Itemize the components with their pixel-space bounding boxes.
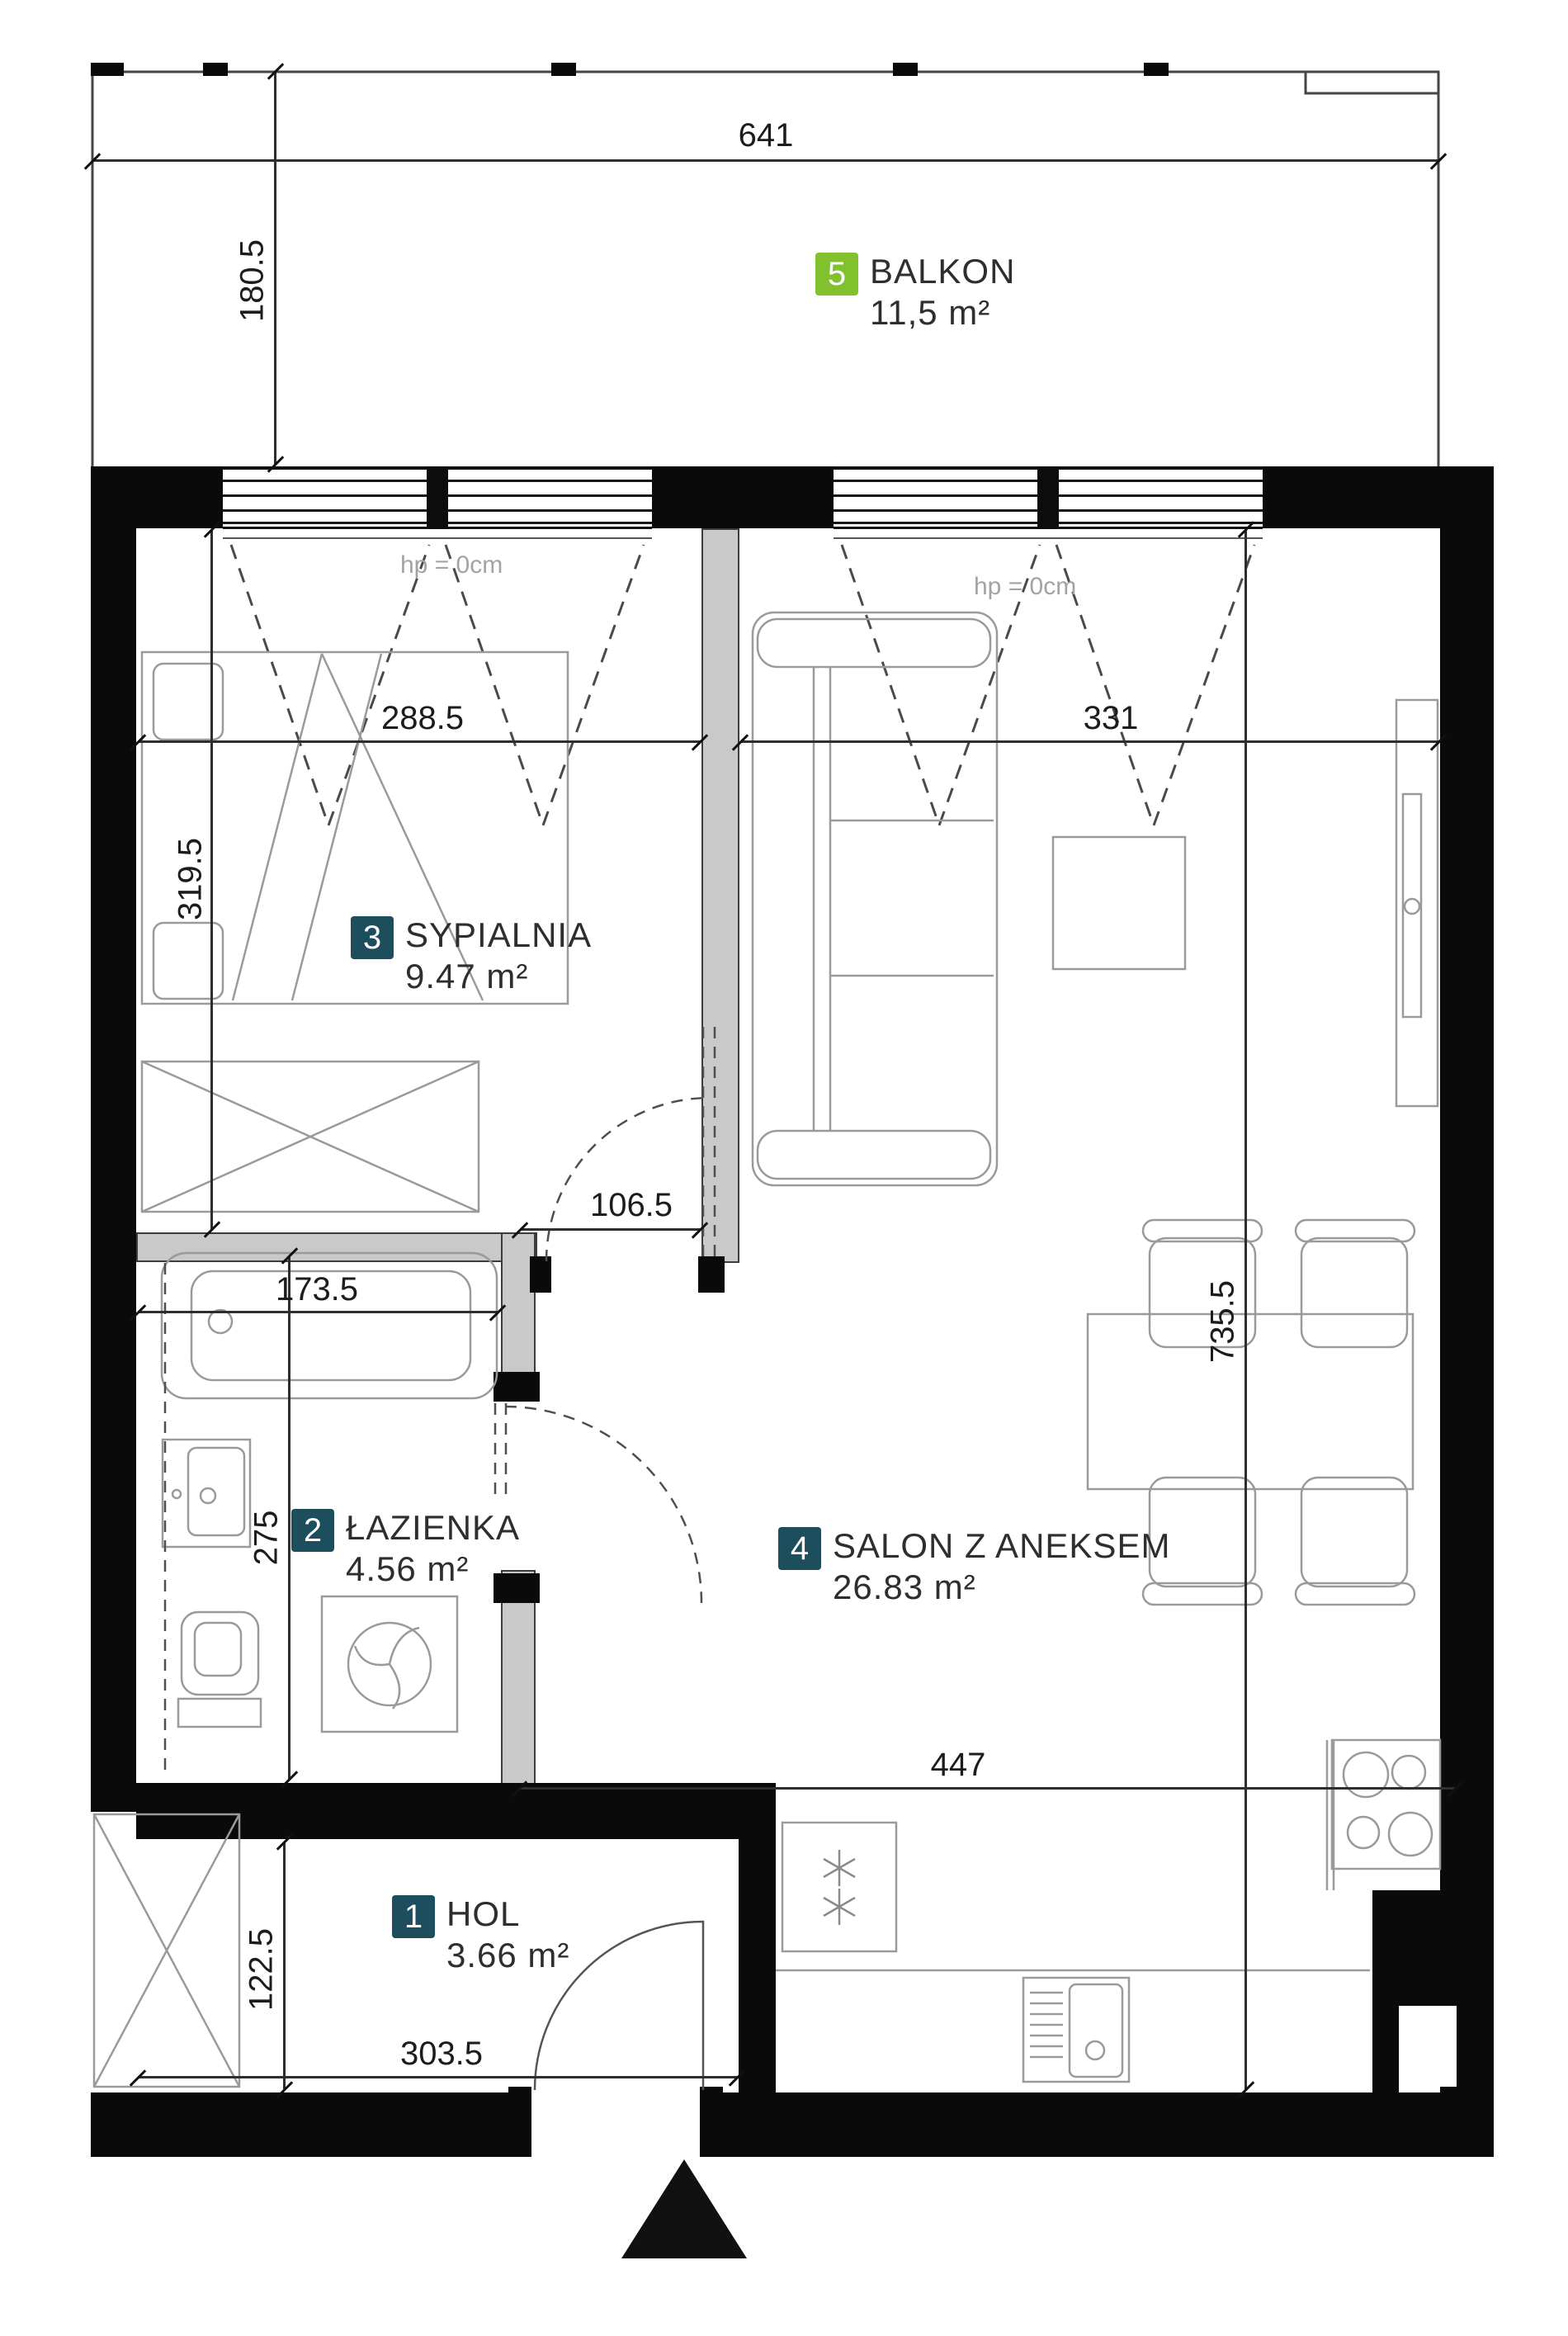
dim-line-hall-depth: [283, 1842, 286, 2090]
kitchen-sink: [1023, 1978, 1129, 2082]
wall-bathroom-top: [136, 1232, 537, 1262]
room-name: SYPIALNIA: [405, 916, 592, 954]
coffee-table: [1053, 837, 1185, 969]
entrance-jamb-left: [508, 2087, 531, 2156]
dim-line-bedroom-depth: [210, 530, 213, 1230]
kitchen-counter: [776, 1740, 1370, 1970]
dim-line-bathroom-depth: [288, 1256, 290, 1780]
dim-bedroom-depth: 319.5: [172, 838, 210, 920]
window-swing-dashes: [231, 545, 1254, 825]
dim-line-balcony-depth: [274, 72, 276, 465]
dim-bedroom-width: 288.5: [381, 700, 464, 737]
hob: [1332, 1740, 1440, 1869]
dim-salon-depth: 735.5: [1205, 1280, 1242, 1363]
toilet: [178, 1612, 261, 1727]
room-number-badge: 3: [351, 916, 394, 959]
window-sill-note: hp = 0cm: [400, 551, 503, 579]
dim-bathroom-width: 173.5: [276, 1271, 358, 1308]
washing-machine: [322, 1596, 457, 1732]
wardrobe-bedroom: [142, 1062, 479, 1212]
bathroom-door-jamb-top: [494, 1372, 540, 1402]
dim-salon-width: 331: [1084, 700, 1139, 737]
dim-line-hall-width: [138, 2076, 737, 2078]
dim-hall-depth: 122.5: [243, 1928, 281, 2011]
room-area: 4.56 m²: [346, 1550, 520, 1588]
bathroom-door-leaf: [495, 1403, 506, 1496]
entrance-jamb-right: [700, 2087, 723, 2156]
room-name: HOL: [446, 1895, 569, 1933]
floor-plan: hp = 0cm hp = 0cm 641 180.5 288.5 331 31…: [0, 0, 1568, 2336]
wall-left: [91, 466, 136, 1812]
tv-unit: [1396, 700, 1438, 1106]
dim-line-bathroom-width: [138, 1311, 498, 1313]
dim-line-salon-depth: [1244, 530, 1247, 2090]
room-label-sypialnia: 3 SYPIALNIA 9.47 m²: [351, 916, 592, 995]
room-number-badge: 4: [778, 1527, 821, 1570]
room-area: 11,5 m²: [870, 294, 1015, 332]
room-name: ŁAZIENKA: [346, 1509, 520, 1547]
dining-chairs: [1143, 1220, 1415, 1605]
washbasin: [163, 1440, 250, 1547]
bedroom-door-jamb-right: [698, 1256, 725, 1293]
room-label-salon: 4 SALON Z ANEKSEM 26.83 m²: [778, 1527, 1170, 1606]
dim-bedroom-door: 106.5: [590, 1187, 673, 1224]
dim-line-salon-width: [740, 740, 1438, 743]
wall-hall-right: [739, 1783, 776, 2095]
wall-hall-top: [136, 1783, 776, 1839]
dim-line-balcony-width: [92, 159, 1438, 162]
window-mullion: [1037, 466, 1059, 529]
duct-shaft-a: [1372, 1890, 1494, 2006]
room-label-balkon: 5 BALKON 11,5 m²: [815, 253, 1015, 332]
room-name: SALON Z ANEKSEM: [833, 1527, 1170, 1565]
shaft-niche: [1399, 2006, 1457, 2087]
wall-partition-bedroom: [701, 528, 739, 1263]
bedroom-door-jamb-left: [530, 1256, 551, 1293]
window-salon: [834, 466, 1263, 529]
dim-bathroom-depth: 275: [248, 1511, 286, 1566]
bedroom-door-arc: [546, 1098, 710, 1261]
floorplan-linework: [0, 0, 1568, 2336]
room-number-badge: 1: [392, 1895, 435, 1938]
room-number-badge: 5: [815, 253, 858, 296]
room-label-hol: 1 HOL 3.66 m²: [392, 1895, 569, 1974]
window-bedroom: [223, 466, 652, 529]
sofa: [753, 612, 997, 1185]
dim-line-bedroom-door: [520, 1228, 700, 1231]
entrance-marker-icon: [621, 2159, 747, 2258]
window-mullion: [427, 466, 448, 529]
dim-hall-width: 303.5: [400, 2036, 483, 2073]
dining-table: [1088, 1314, 1413, 1489]
dim-line-bedroom-width: [138, 740, 700, 743]
wall-right: [1440, 466, 1494, 2095]
wall-bottom: [91, 2092, 1494, 2157]
dim-line-kitchen-width: [519, 1787, 1455, 1790]
entrance-opening: [531, 2092, 700, 2157]
fridge: [782, 1823, 896, 1951]
room-area: 9.47 m²: [405, 958, 592, 995]
duct-shaft-b: [1372, 2006, 1399, 2095]
window-sill-note: hp = 0cm: [974, 573, 1076, 601]
dim-kitchen-width: 447: [931, 1747, 986, 1784]
dim-balcony-depth: 180.5: [234, 239, 272, 322]
wardrobe-hall: [94, 1814, 239, 2087]
fridge-snowflakes: [824, 1850, 855, 1925]
room-area: 3.66 m²: [446, 1936, 569, 1974]
room-label-lazienka: 2 ŁAZIENKA 4.56 m²: [291, 1509, 520, 1588]
room-name: BALKON: [870, 253, 1015, 291]
room-area: 26.83 m²: [833, 1568, 1170, 1606]
railing-posts: [91, 63, 1169, 76]
dim-balcony-width: 641: [739, 117, 794, 154]
room-number-badge: 2: [291, 1509, 334, 1552]
